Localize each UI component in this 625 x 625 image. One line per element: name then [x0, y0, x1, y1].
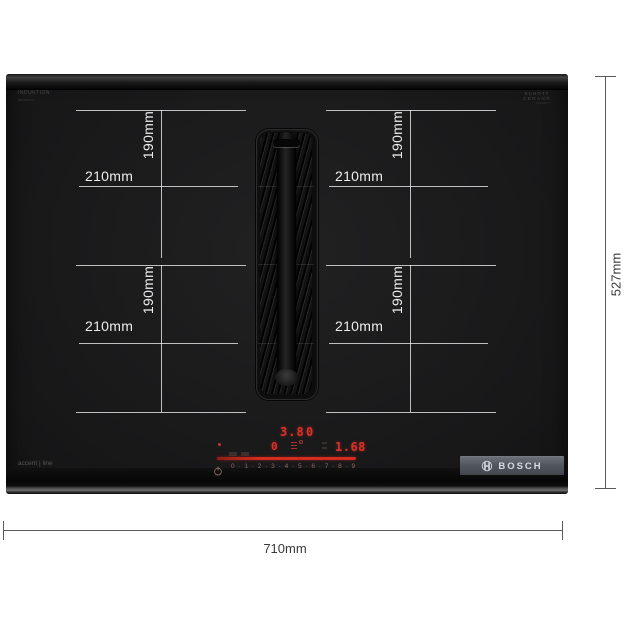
- function-icon: [229, 452, 237, 456]
- power-icon: [213, 463, 223, 481]
- glass-print-induktion-sub: induction: [18, 98, 35, 102]
- glass-print-schott-ceran: SCHOTT CERAN® Miradur™: [523, 91, 551, 105]
- zone-width-label: 210mm: [85, 168, 133, 184]
- glass-print-induktion: INDUKTION: [18, 90, 50, 96]
- depth-dimension-line: [605, 76, 606, 489]
- depth-dimension-label: 527mm: [609, 245, 624, 305]
- zone-depth-label: 190mm: [389, 260, 405, 320]
- zone-width-line: [329, 343, 488, 344]
- zone-width-line: [79, 343, 238, 344]
- vent-level-display: 0: [271, 440, 278, 453]
- zone-line: [326, 412, 496, 413]
- zone-depth-label: 190mm: [140, 260, 156, 320]
- width-dimension-line: [3, 530, 563, 531]
- bosch-logo-icon: [481, 460, 493, 472]
- fan-level-icon: [291, 442, 297, 450]
- vent-center-bar: [277, 132, 296, 384]
- timer-icon: [322, 442, 327, 444]
- zone-depth-label: 190mm: [140, 105, 156, 165]
- zone-width-label: 210mm: [85, 318, 133, 334]
- zone-width-label: 210mm: [335, 318, 383, 334]
- zone-depth-label: 190mm: [389, 105, 405, 165]
- power-level-display-right: 0: [306, 425, 313, 439]
- zone-width-label: 210mm: [335, 168, 383, 184]
- slider-scale: 0 · 1 · 2 · 3 · 4 · 5 · 6 · 7 · 8 · 9: [231, 463, 357, 470]
- zone-line: [326, 110, 496, 111]
- hob-rear-edge: [6, 74, 568, 90]
- bosch-logo-text: BOSCH: [498, 461, 542, 472]
- zone-line: [410, 265, 411, 412]
- power-level-display-left: 3.8: [280, 425, 305, 439]
- dimension-cap: [595, 488, 616, 489]
- zone-line: [410, 110, 411, 258]
- degree-icon: [299, 440, 303, 444]
- dimension-cap: [562, 521, 563, 540]
- bosch-badge: BOSCH: [460, 456, 564, 475]
- zone-line: [161, 110, 162, 258]
- width-dimension-label: 710mm: [255, 541, 315, 556]
- product-diagram: INDUKTION induction SCHOTT CERAN® Miradu…: [0, 0, 625, 625]
- zone-line: [161, 265, 162, 412]
- vent-handle: [273, 139, 300, 147]
- function-icon: [241, 452, 249, 456]
- series-label: accent | line: [18, 460, 53, 467]
- led-indicator-dot: [218, 443, 221, 446]
- vent-bar-cap: [275, 369, 298, 386]
- timer-icon: [322, 447, 327, 449]
- timer-display: 1.68: [335, 440, 366, 454]
- dimension-cap: [3, 521, 4, 540]
- dimension-cap: [595, 76, 616, 77]
- zone-line: [326, 265, 496, 266]
- zone-line: [76, 412, 246, 413]
- zone-width-line: [329, 186, 488, 187]
- zone-width-line: [79, 186, 238, 187]
- power-slider: [217, 457, 356, 460]
